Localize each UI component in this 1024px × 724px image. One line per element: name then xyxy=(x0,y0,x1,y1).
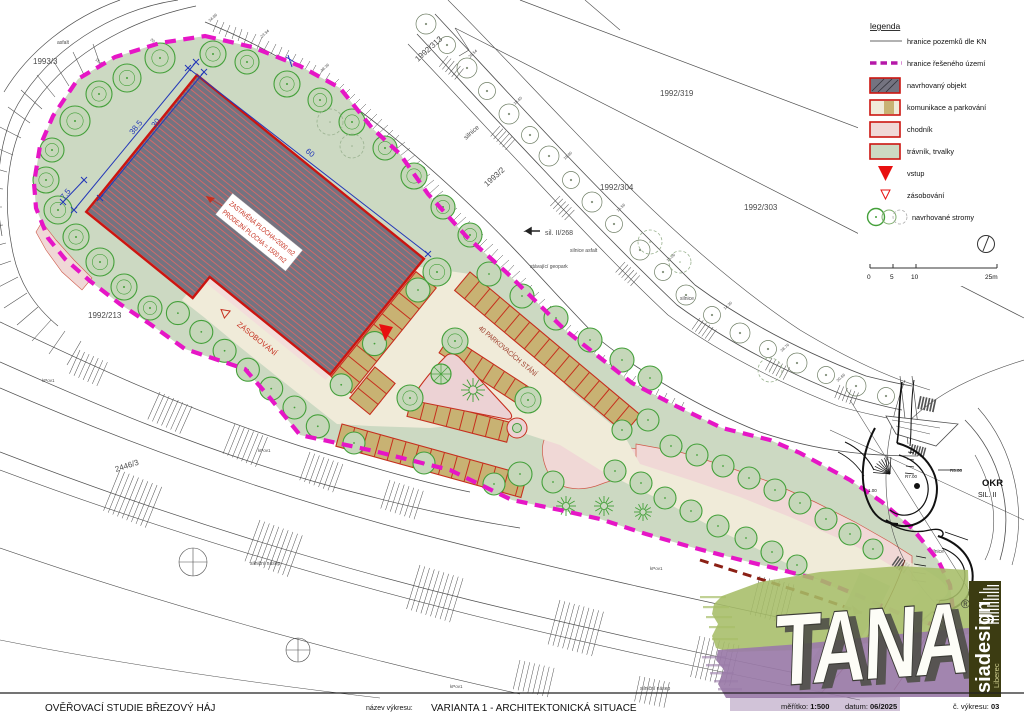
svg-text:zásobování: zásobování xyxy=(907,191,944,200)
svg-text:silniční násep: silniční násep xyxy=(640,686,671,692)
svg-text:1.00: 1.00 xyxy=(868,488,877,493)
svg-text:č. výkresu: 03: č. výkresu: 03 xyxy=(953,702,999,711)
svg-text:kPov1: kPov1 xyxy=(450,684,463,689)
svg-text:1992/319: 1992/319 xyxy=(660,89,694,98)
svg-text:trávník, trvalky: trávník, trvalky xyxy=(907,147,954,156)
svg-text:kPov1: kPov1 xyxy=(42,378,55,383)
svg-text:hranice řešeného území: hranice řešeného území xyxy=(907,59,985,68)
svg-text:měřítko: 1:500: měřítko: 1:500 xyxy=(781,702,829,711)
svg-text:sil. II/268: sil. II/268 xyxy=(545,230,573,237)
svg-text:asfalt: asfalt xyxy=(57,40,70,46)
svg-text:®: ® xyxy=(961,597,970,611)
svg-text:hranice pozemků dle KN: hranice pozemků dle KN xyxy=(907,37,987,46)
svg-text:kPov1: kPov1 xyxy=(650,566,663,571)
svg-text:10: 10 xyxy=(911,274,919,281)
svg-text:R5.00: R5.00 xyxy=(950,468,963,473)
svg-text:komunikace a parkování: komunikace a parkování xyxy=(907,103,986,112)
svg-text:1993/3: 1993/3 xyxy=(33,57,58,66)
svg-text:5: 5 xyxy=(890,274,894,281)
svg-text:VARIANTA 1 - ARCHITEKTONICKÁ S: VARIANTA 1 - ARCHITEKTONICKÁ SITUACE xyxy=(431,701,637,714)
svg-text:TANA: TANA xyxy=(773,580,970,708)
svg-text:SIL. II: SIL. II xyxy=(978,492,996,499)
svg-text:navrhovaný objekt: navrhovaný objekt xyxy=(907,81,966,90)
svg-text:OVĚŘOVACÍ STUDIE BŘEZOVÝ HÁJ: OVĚŘOVACÍ STUDIE BŘEZOVÝ HÁJ xyxy=(45,701,215,714)
svg-text:chodník: chodník xyxy=(907,125,933,134)
svg-text:kPov1: kPov1 xyxy=(258,448,271,453)
svg-text:silniční násep: silniční násep xyxy=(250,561,281,567)
svg-text:legenda: legenda xyxy=(870,21,901,31)
svg-text:vstup: vstup xyxy=(907,169,924,178)
svg-text:0: 0 xyxy=(867,274,871,281)
svg-text:navrhované stromy: navrhované stromy xyxy=(912,213,974,222)
svg-text:1992/303: 1992/303 xyxy=(744,203,778,212)
svg-text:1992/304: 1992/304 xyxy=(600,183,634,192)
svg-text:R7.00: R7.00 xyxy=(905,474,918,479)
svg-text:datum: 06/2025: datum: 06/2025 xyxy=(845,702,897,711)
svg-text:silnice: silnice xyxy=(680,296,694,302)
svg-text:název výkresu:: název výkresu: xyxy=(366,705,413,712)
svg-text:OKR: OKR xyxy=(982,478,1003,489)
svg-text:stávající geopark: stávající geopark xyxy=(530,264,568,270)
svg-text:1992/213: 1992/213 xyxy=(88,311,122,320)
svg-text:Liberec: Liberec xyxy=(992,663,1001,688)
svg-text:25m: 25m xyxy=(985,274,998,281)
svg-text:silnice asfalt: silnice asfalt xyxy=(570,248,598,254)
